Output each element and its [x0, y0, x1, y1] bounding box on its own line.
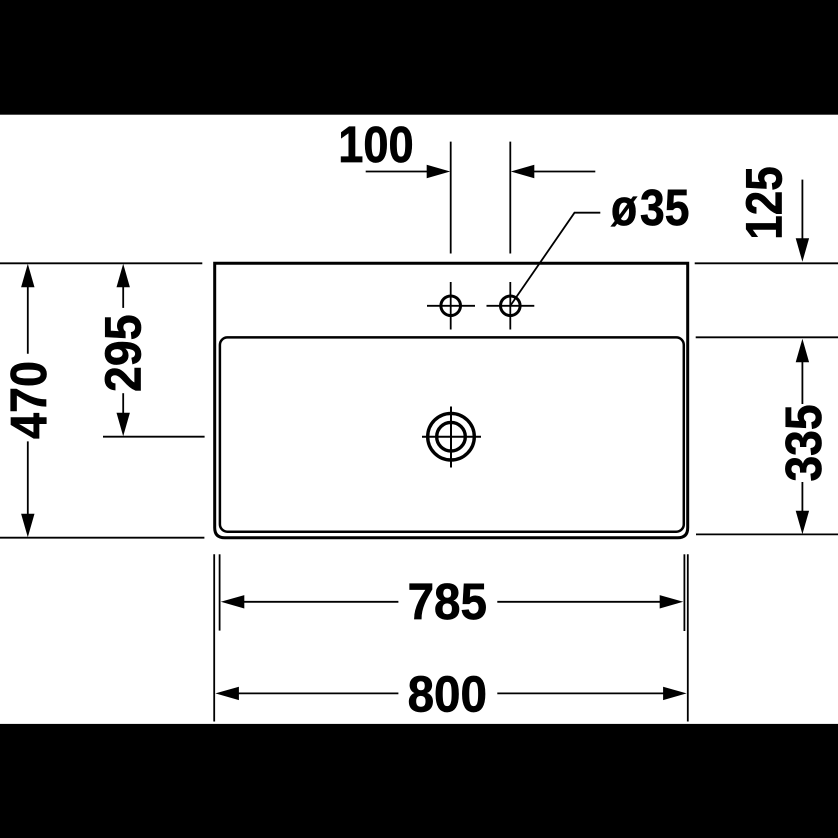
- svg-text:785: 785: [408, 573, 487, 630]
- svg-text:ø: ø: [611, 178, 637, 235]
- svg-text:335: 335: [775, 405, 832, 482]
- svg-text:800: 800: [408, 666, 487, 723]
- svg-text:35: 35: [640, 179, 689, 236]
- svg-text:100: 100: [338, 116, 413, 173]
- svg-text:125: 125: [736, 166, 793, 239]
- svg-text:470: 470: [0, 361, 57, 439]
- svg-text:295: 295: [95, 314, 152, 392]
